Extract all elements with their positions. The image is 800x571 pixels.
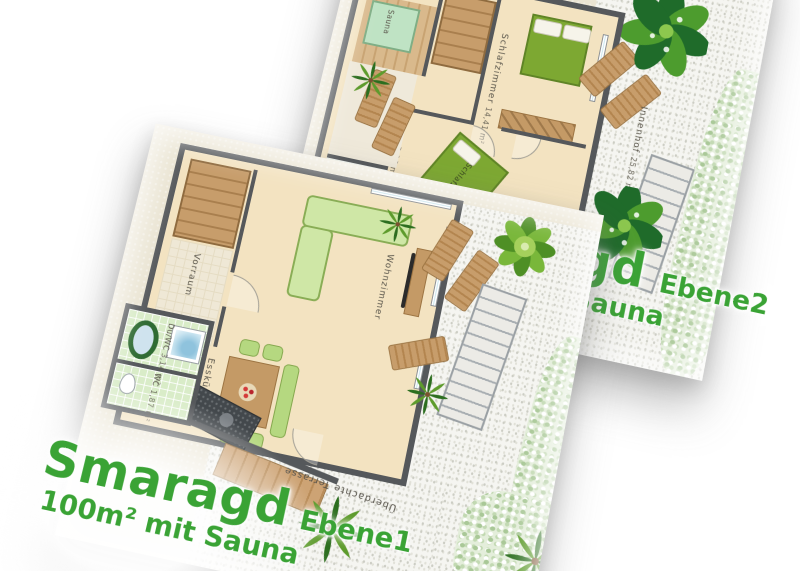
whirlpool-tub [124,318,162,363]
palm-icon [372,200,423,250]
wc-area: 1,87 m² [142,388,158,422]
dining-chair [238,338,261,357]
sauna-label: Sauna [381,9,396,35]
door-swing [227,275,266,313]
wohnzimmer-label: Wohnzimmer [370,253,395,321]
sofa-section [286,224,335,302]
toilet [117,372,137,396]
flower-centerpiece [237,382,259,403]
wc-label: WC 1,87 m² [142,372,163,422]
tree-icon [487,209,563,284]
dining-chair [261,343,284,363]
palm-icon [493,518,577,571]
interior-wall [413,109,474,126]
palm-icon [399,366,456,423]
poster-stage: Sauna Schlafzimmer 14,41 m² [0,0,800,571]
cooktop [217,411,236,430]
pillow [533,18,563,38]
door-swing [511,134,541,164]
pillow [562,24,592,44]
